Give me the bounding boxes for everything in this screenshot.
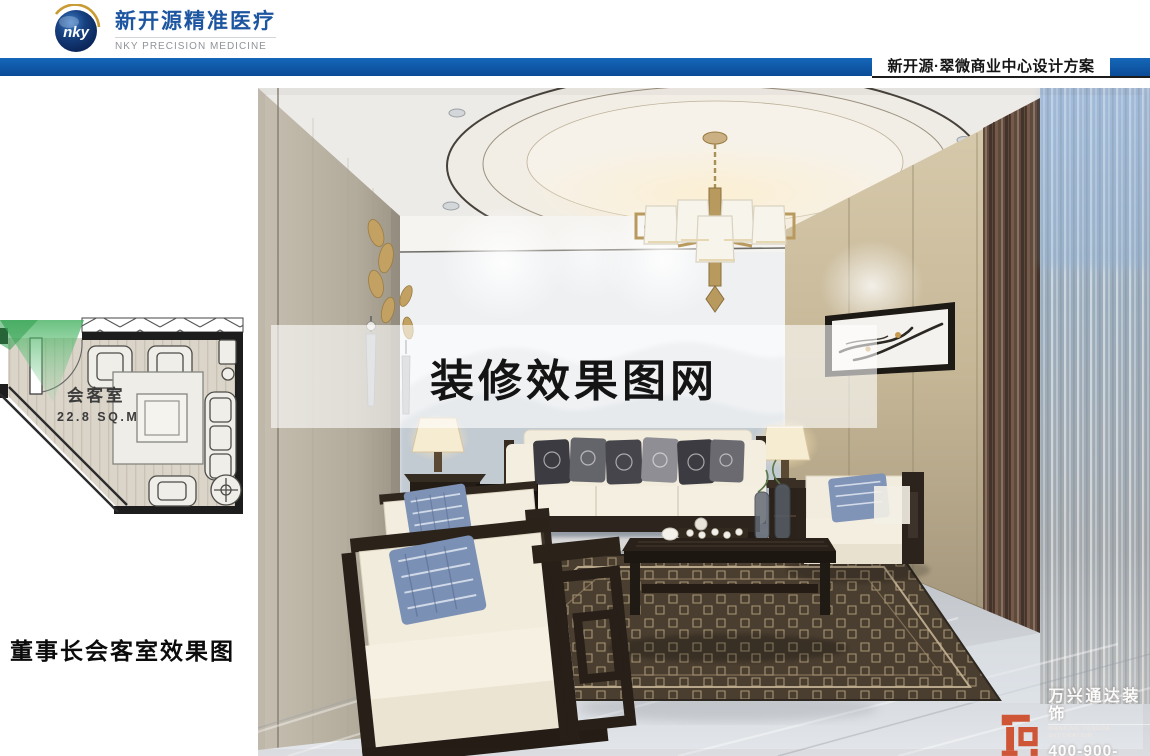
project-title-box: 新开源·翠微商业中心设计方案: [872, 58, 1110, 78]
floor-plan: 会客室 22.8 SQ.M: [0, 300, 258, 535]
project-title: 新开源·翠微商业中心设计方案: [888, 58, 1095, 75]
brand-name-en: WANXING TONGDA DECORATION: [1048, 724, 1150, 740]
company-name-cn: 新开源精准医疗: [115, 9, 276, 35]
company-logo: nky 新开源精准医疗 NKY PRECISION MEDICINE: [50, 4, 276, 56]
brand-phone: 400-900-4560: [1048, 743, 1150, 756]
sofa-pillows: [533, 437, 745, 485]
title-bar-blue-cap: [1110, 58, 1150, 78]
rendering-caption: 董事长会客室效果图: [10, 632, 235, 666]
plan-area-label: 22.8 SQ.M: [57, 410, 139, 424]
logo-sphere-icon: nky: [50, 4, 102, 56]
brand-name-cn: 万兴通达装饰: [1048, 688, 1150, 724]
logo-abbr: nky: [63, 24, 90, 41]
curtain: [983, 98, 1040, 696]
site-watermark-text: 装修效果图网: [430, 345, 718, 409]
title-bar: 新开源·翠微商业中心设计方案: [0, 58, 1150, 79]
plan-window: [82, 318, 243, 332]
brand-logo-icon: [1000, 707, 1040, 756]
watermark-band: 装修效果图网: [271, 325, 877, 428]
plan-floor-lamp: [219, 340, 236, 364]
right-armchair: [786, 472, 930, 583]
title-bar-blue-strip: [0, 58, 872, 76]
brand-watermark: 万兴通达装饰 WANXING TONGDA DECORATION 400-900…: [1000, 688, 1150, 756]
slide: nky 新开源精准医疗 NKY PRECISION MEDICINE 新开源·翠…: [0, 0, 1150, 756]
company-name-en: NKY PRECISION MEDICINE: [115, 37, 276, 52]
plan-room-label: 会客室: [67, 385, 126, 405]
sheer-curtain: [1040, 88, 1150, 704]
